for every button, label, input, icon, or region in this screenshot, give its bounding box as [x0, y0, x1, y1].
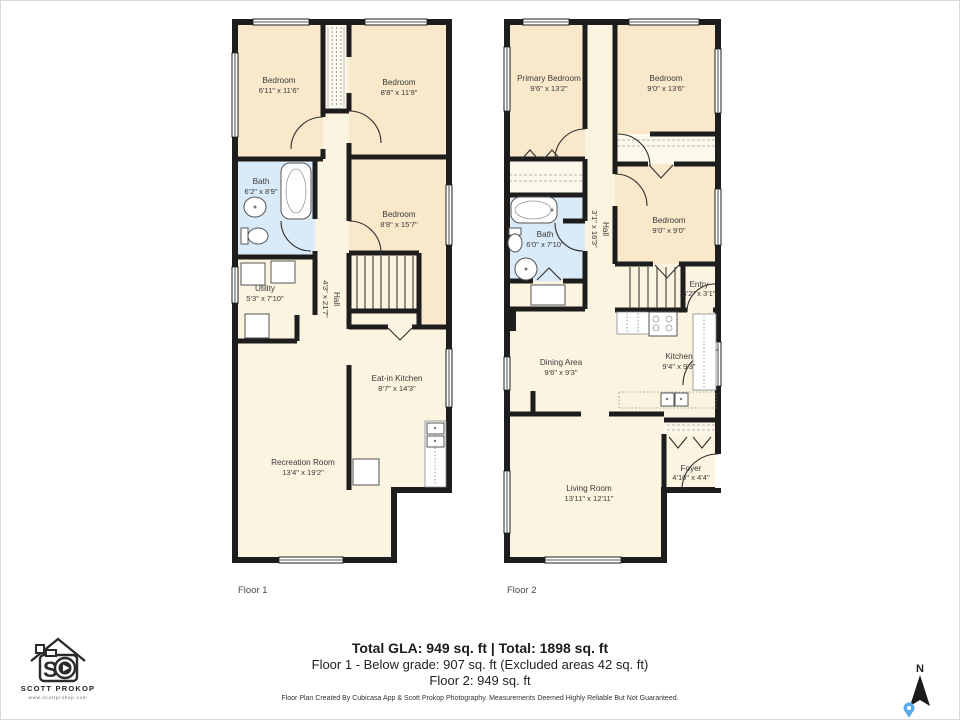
floor1-stairwell-strip-fill [326, 25, 346, 111]
svg-text:9'4" x 9'3": 9'4" x 9'3" [662, 362, 696, 371]
svg-text:3'2" x 3'1": 3'2" x 3'1" [682, 289, 716, 298]
svg-text:Recreation Room: Recreation Room [271, 458, 335, 467]
svg-text:4'3" x 21'7": 4'3" x 21'7" [321, 280, 330, 318]
svg-text:Bath: Bath [537, 230, 554, 239]
room-label-dining-area: Dining Area 9'6" x 9'3" [540, 358, 583, 377]
washer-icon [241, 263, 265, 285]
camera-prism-icon [46, 650, 56, 656]
svg-text:Primary Bedroom: Primary Bedroom [517, 74, 581, 83]
floor2-chimney-block [505, 311, 516, 331]
svg-text:8'7" x 14'3": 8'7" x 14'3" [378, 384, 416, 393]
front-door-opening [715, 454, 721, 488]
appliance-icon [353, 459, 379, 485]
chimney-icon [36, 645, 44, 653]
svg-text:8'8" x 15'7": 8'8" x 15'7" [380, 220, 418, 229]
svg-text:Hall: Hall [332, 292, 341, 306]
room-label-eat-in-kitchen: Eat-in Kitchen 8'7" x 14'3" [372, 374, 423, 393]
svg-text:Living Room: Living Room [566, 484, 612, 493]
floor2-closet-band-tr [615, 134, 718, 164]
room-label-bedroom-tl: Bedroom 6'11" x 11'6" [259, 76, 300, 95]
svg-text:13'11" x 12'11": 13'11" x 12'11" [565, 494, 614, 503]
kitchen-counter [693, 314, 716, 390]
svg-text:3'1" x 16'3": 3'1" x 16'3" [590, 210, 599, 248]
svg-text:Eat-in Kitchen: Eat-in Kitchen [372, 374, 423, 383]
svg-text:6'11" x 11'6": 6'11" x 11'6" [259, 86, 300, 95]
storage-box-icon [245, 314, 269, 338]
brand-website: www.scottprokop.com [14, 695, 102, 700]
room-label-bedroom-tr: Bedroom 8'8" x 11'9" [381, 78, 418, 97]
svg-text:Bedroom: Bedroom [382, 78, 415, 87]
svg-text:Kitchen: Kitchen [665, 352, 693, 361]
floor2-area-line: Floor 2: 949 sq. ft [0, 673, 960, 688]
svg-text:9'0" x 9'0": 9'0" x 9'0" [652, 226, 686, 235]
svg-text:5'3" x 7'10": 5'3" x 7'10" [246, 294, 284, 303]
svg-text:8'8" x 11'9": 8'8" x 11'9" [381, 88, 418, 97]
page-border [0, 0, 960, 720]
brand-name: SCOTT PROKOP [14, 684, 102, 693]
map-pin-icon [904, 703, 915, 719]
linen-closet [531, 285, 565, 305]
brand-logo-icon: S [26, 634, 90, 684]
svg-text:Hall: Hall [601, 222, 610, 236]
floor2-caption: Floor 2 [507, 585, 537, 596]
room-label-kitchen: Kitchen 9'4" x 9'3" [662, 352, 696, 371]
svg-text:13'4" x 19'2": 13'4" x 19'2" [282, 468, 324, 477]
svg-text:Bedroom: Bedroom [652, 216, 685, 225]
floor1-plan: Bedroom 6'11" x 11'6" Bedroom 8'8" x 11'… [231, 9, 455, 565]
toilet-icon [508, 228, 522, 252]
room-label-living-room: Living Room 13'11" x 12'11" [565, 484, 614, 503]
floor1-caption: Floor 1 [238, 585, 268, 596]
compass: N [888, 652, 940, 718]
north-arrow-icon [910, 675, 930, 706]
svg-text:Dining Area: Dining Area [540, 358, 583, 367]
svg-text:9'6" x 9'3": 9'6" x 9'3" [544, 368, 578, 377]
svg-text:Entry: Entry [689, 280, 709, 289]
floor2-bedroom-mr-fill [615, 164, 718, 264]
compass-north-label: N [916, 663, 924, 675]
svg-text:6'2" x 8'9": 6'2" x 8'9" [244, 187, 278, 196]
svg-text:Utility: Utility [255, 284, 276, 293]
svg-text:Foyer: Foyer [681, 464, 702, 473]
toilet-icon [241, 228, 268, 244]
disclaimer-line: Floor Plan Created By Cubicasa App & Sco… [0, 695, 960, 702]
svg-text:Bedroom: Bedroom [382, 210, 415, 219]
floor2-plan: Primary Bedroom 9'6" x 13'2" Bedroom 9'0… [503, 9, 727, 565]
room-label-bedroom-mr: Bedroom 8'8" x 15'7" [380, 210, 418, 229]
svg-text:Bath: Bath [253, 177, 270, 186]
svg-text:Bedroom: Bedroom [649, 74, 682, 83]
svg-text:4'10" x 4'4": 4'10" x 4'4" [672, 473, 710, 482]
svg-text:Bedroom: Bedroom [262, 76, 295, 85]
stove-icon [649, 312, 677, 336]
total-gla-line: Total GLA: 949 sq. ft | Total: 1898 sq. … [0, 640, 960, 656]
room-label-bedroom-mr: Bedroom 9'0" x 9'0" [652, 216, 686, 235]
svg-text:9'0" x 13'6": 9'0" x 13'6" [647, 84, 685, 93]
svg-text:9'6" x 13'2": 9'6" x 13'2" [530, 84, 568, 93]
svg-text:6'0" x 7'10": 6'0" x 7'10" [526, 240, 564, 249]
floor-plan-canvas: Bedroom 6'11" x 11'6" Bedroom 8'8" x 11'… [0, 0, 960, 720]
floor1-area-line: Floor 1 - Below grade: 907 sq. ft (Exclu… [0, 657, 960, 672]
room-label-bedroom-tr: Bedroom 9'0" x 13'6" [647, 74, 685, 93]
dryer-icon [271, 261, 295, 283]
floor2-closet-band-primary [507, 159, 585, 195]
bathtub-icon [281, 163, 311, 219]
